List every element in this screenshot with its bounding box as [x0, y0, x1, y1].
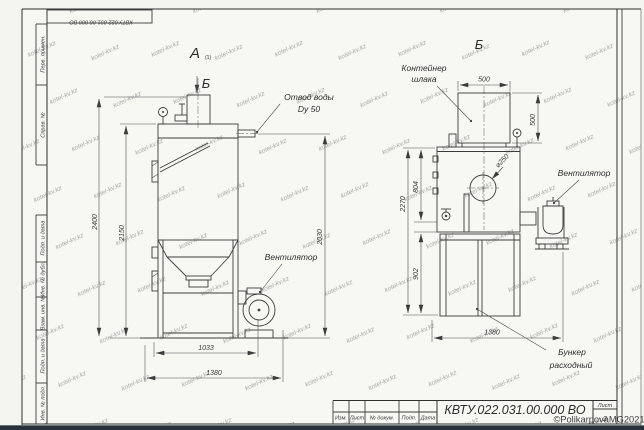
- margin-stamp: Инв. № дубл.: [41, 262, 47, 296]
- margin-stamp: Справ. №: [41, 112, 47, 137]
- callout-hopper-line1: Бункер: [558, 347, 586, 357]
- title-col-izm: Изм.: [335, 416, 347, 422]
- title-col-list: Лист: [349, 416, 365, 422]
- dim-2400: 2400: [92, 214, 99, 231]
- drawing-sheet: kotel-kv.kz kotel-kv.kz КВТУ.022.031.00.…: [0, 0, 644, 430]
- dim-2030: 2030: [317, 229, 324, 246]
- callout-container-line1: Контейнер: [401, 63, 446, 73]
- dim-2150: 2150: [119, 225, 126, 242]
- title-col-data: Дата: [420, 416, 436, 422]
- callout-fan-left: Вентилятор: [265, 252, 318, 262]
- dim-1033: 1033: [198, 345, 214, 352]
- view-a-section-mark: Б: [202, 76, 211, 91]
- watermark-layer: [22, 9, 641, 424]
- title-col-podp: Подп.: [402, 416, 417, 422]
- margin-stamp: Инв. № подл.: [41, 386, 47, 421]
- margin-stamp: Подп. и дата: [41, 338, 47, 373]
- dim-1380-left: 1380: [206, 370, 222, 377]
- bottom-dark-strip: [0, 426, 644, 430]
- dim-2270: 2270: [400, 196, 407, 213]
- margin-stamp: Взам. инв. №: [41, 296, 47, 331]
- margin-stamp: Подп. и дата: [41, 220, 47, 255]
- title-col-docnum: № докум.: [370, 416, 395, 422]
- top-designation-stamp: КВТУ.022.031.00.000 ВО: [69, 19, 133, 25]
- dim-500-width: 500: [478, 77, 490, 84]
- credit-watermark: ©PolikarpovaMG2021: [553, 415, 644, 425]
- callout-water-outlet-line2: Dy 50: [298, 104, 320, 114]
- view-a-label: А: [189, 45, 200, 62]
- view-a-label-sub: (1): [205, 55, 211, 61]
- view-b-label: Б: [475, 37, 484, 52]
- dim-1380-right: 1380: [484, 330, 500, 337]
- callout-container-line2: шлака: [411, 74, 437, 84]
- dim-804: 804: [413, 181, 420, 193]
- margin-stamp: Перв. примен.: [41, 35, 47, 72]
- callout-fan-right: Вентилятор: [558, 168, 611, 178]
- callout-hopper-line2: расходный: [549, 360, 593, 370]
- dim-902: 902: [413, 268, 420, 280]
- dim-500-height: 500: [530, 114, 537, 126]
- drawing-canvas: kotel-kv.kz kotel-kv.kz КВТУ.022.031.00.…: [0, 0, 644, 430]
- callout-water-outlet-line1: Отвод воды: [284, 92, 334, 102]
- title-sheet-label: Лист: [597, 403, 613, 409]
